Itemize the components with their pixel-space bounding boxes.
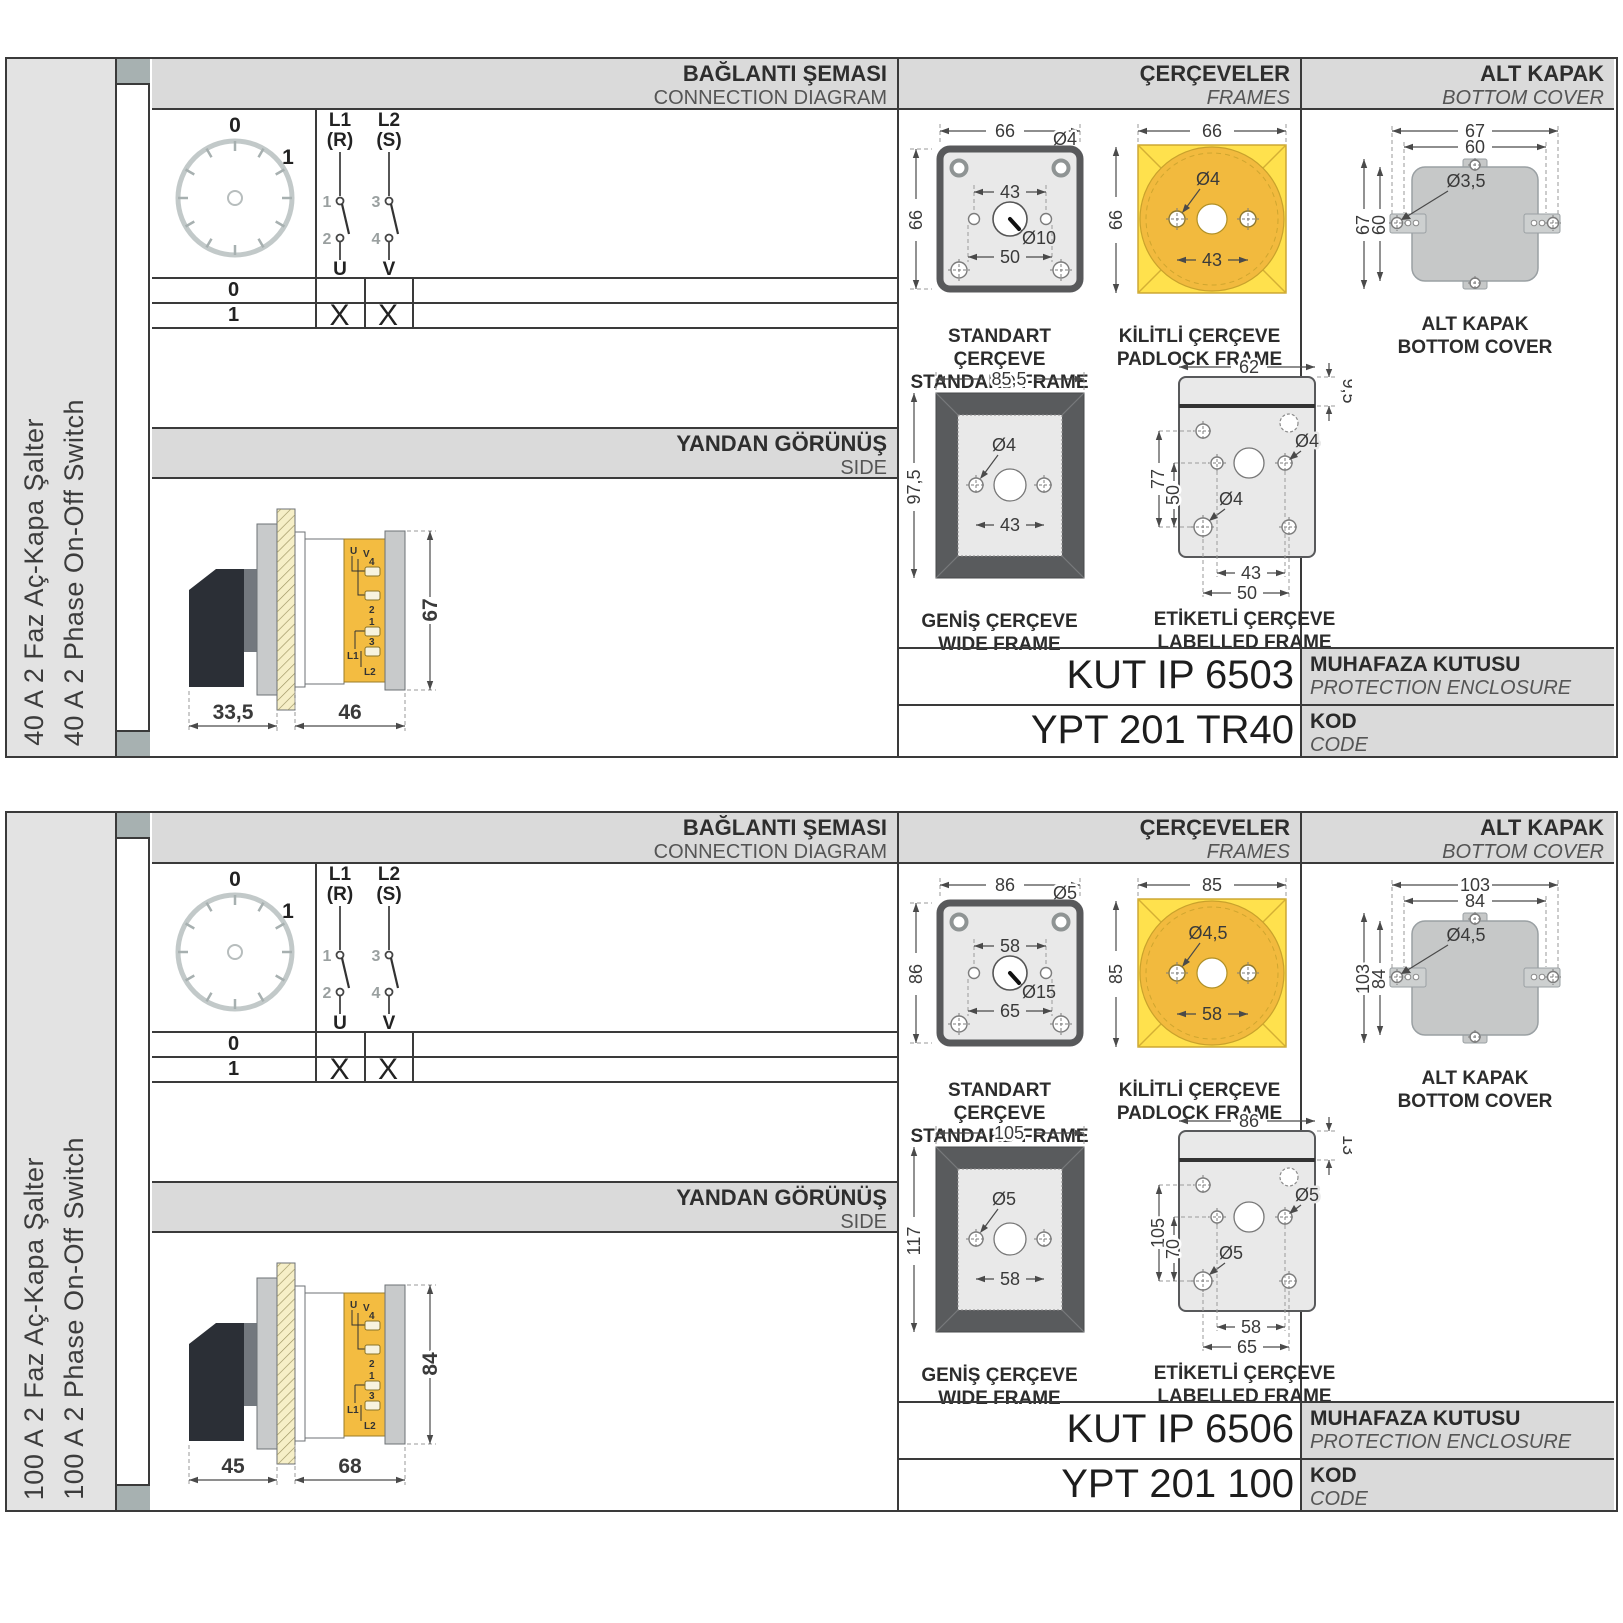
dim-height: 67 <box>419 598 442 621</box>
handle-knob <box>189 569 244 687</box>
cover-caption-en: BOTTOM COVER <box>1340 1090 1610 1113</box>
pole2-contact-upper: 3 <box>372 948 381 965</box>
lab-plain-hole <box>1280 1168 1298 1186</box>
code-label-en: CODE <box>1310 734 1614 757</box>
std-caption-tr: STANDART ÇERÇEVE <box>902 325 1097 371</box>
labelled-frame-drawing: 86 13 Ø5 Ø5 <box>1137 1111 1352 1359</box>
product-title-sidebar: 40 A 2 Faz Aç-Kapa Şalter 40 A 2 Phase O… <box>7 59 117 756</box>
product-title-turkish: 40 A 2 Faz Aç-Kapa Şalter <box>19 418 50 746</box>
wide-dim-hole: Ø5 <box>992 1189 1016 1209</box>
side-view-drawing: U V 4 2 1 3 L1 L2 67 <box>162 479 482 756</box>
std-dim-lower: 65 <box>1000 1001 1020 1021</box>
terminal-u: U <box>350 546 357 557</box>
padlock-frame-drawing: 66 66 Ø4 <box>1102 117 1297 322</box>
pole1-line2: (R) <box>327 130 353 151</box>
enclosure-label-en: PROTECTION ENCLOSURE <box>1310 677 1614 700</box>
wide-dim-h: 117 <box>904 1227 924 1256</box>
std-dim-shaft: Ø15 <box>1022 982 1056 1002</box>
padlock-dims-left: 85 <box>1106 901 1126 1047</box>
catalog-page: 40 A 2 Faz Aç-Kapa Şalter 40 A 2 Phase O… <box>0 0 1623 1623</box>
terminal-3: 3 <box>369 637 375 648</box>
lab-dim-w: 62 <box>1239 357 1259 377</box>
index-strip <box>117 59 150 756</box>
diagram-divider <box>315 110 317 327</box>
side-band-en: SIDE <box>152 457 887 479</box>
dial-position-0: 0 <box>229 114 241 137</box>
code-label-tr: KOD <box>1310 709 1614 734</box>
header-side-view: YANDAN GÖRÜNÜŞ SIDE <box>152 427 897 479</box>
panel-40a-switch: 40 A 2 Faz Aç-Kapa Şalter 40 A 2 Phase O… <box>5 57 1618 758</box>
terminal-u: U <box>350 1300 357 1311</box>
bottom-cover-caption: ALT KAPAK BOTTOM COVER <box>1340 313 1610 359</box>
cover-dim-w2: 84 <box>1465 891 1485 911</box>
standard-frame-dims-left: 86 <box>906 903 932 1043</box>
wide-dim-w: 85,5 <box>991 369 1026 389</box>
end-plate <box>385 531 405 690</box>
side-band-en: SIDE <box>152 1211 887 1233</box>
side-view-drawing: U V 4 2 1 3 L1 L2 84 <box>162 1233 482 1510</box>
terminal-4: 4 <box>369 1311 375 1322</box>
lab-dim-h2: 50 <box>1163 485 1183 505</box>
header-frames-tr: ÇERÇEVELER <box>897 59 1290 87</box>
padlock-dims-top: 66 <box>1138 121 1286 143</box>
pad-dim-hole: Ø4,5 <box>1188 923 1227 943</box>
enclosure-code-label: MUHAFAZA KUTUSU PROTECTION ENCLOSURE <box>1300 1403 1614 1458</box>
lab-dim-hole: Ø4 <box>1295 431 1319 451</box>
header-bottom-cover: ALT KAPAK BOTTOM COVER <box>1300 813 1614 864</box>
wide-dims-left: 117 <box>904 1147 924 1332</box>
std-caption-tr: STANDART ÇERÇEVE <box>902 1079 1097 1125</box>
code-label-en: CODE <box>1310 1488 1614 1511</box>
cover-dim-h2: 60 <box>1369 215 1389 235</box>
lab-dim-lower: 50 <box>1237 583 1257 603</box>
panel-100a-switch: 100 A 2 Faz Aç-Kapa Şalter 100 A 2 Phase… <box>5 811 1618 1512</box>
enclosure-code-label: MUHAFAZA KUTUSU PROTECTION ENCLOSURE <box>1300 649 1614 704</box>
std-side-hole-r <box>1041 214 1052 225</box>
table-row1-v: X <box>364 303 412 328</box>
wide-dim-inner: 58 <box>1000 1269 1020 1289</box>
product-title-english: 100 A 2 Phase On-Off Switch <box>59 1137 90 1500</box>
std-side-hole-r <box>1041 968 1052 979</box>
pad-dim-w: 85 <box>1202 875 1222 895</box>
pad-dim-h: 85 <box>1106 964 1126 984</box>
pole1-line2: (R) <box>327 884 353 905</box>
pad-dim-inner: 58 <box>1202 1004 1222 1024</box>
product-code-value: YPT 201 100 <box>897 1458 1300 1510</box>
pole2-line1: L2 <box>378 110 400 131</box>
header-frames-tr: ÇERÇEVELER <box>897 813 1290 841</box>
terminal-2: 2 <box>369 605 375 616</box>
code-label-tr: KOD <box>1310 1463 1614 1488</box>
panel-main: BAĞLANTI ŞEMASI CONNECTION DIAGRAM ÇERÇE… <box>152 813 1616 1510</box>
side-band-tr: YANDAN GÖRÜNÜŞ <box>152 1183 887 1211</box>
enclosure-code-value: KUT IP 6506 <box>897 1401 1300 1458</box>
std-corner-hole-tl <box>952 161 967 176</box>
pole2-out: V <box>383 259 396 277</box>
wide-dim-inner: 43 <box>1000 515 1020 535</box>
cover-caption-en: BOTTOM COVER <box>1340 336 1610 359</box>
cover-dims-left: 103 84 <box>1353 913 1389 1043</box>
header-frames-en: FRAMES <box>897 87 1290 109</box>
pole1-out: U <box>333 1013 347 1031</box>
handle-knob <box>189 1323 244 1441</box>
std-side-hole-l <box>969 214 980 225</box>
dim-a: 33,5 <box>213 701 254 724</box>
std-dim-inner: 43 <box>1000 182 1020 202</box>
header-side-view: YANDAN GÖRÜNÜŞ SIDE <box>152 1181 897 1233</box>
pole1-line1: L1 <box>329 110 352 131</box>
padlock-shaft-hole <box>1197 204 1227 234</box>
lab-dim-hole2: Ø5 <box>1219 1243 1243 1263</box>
lab-caption-tr: ETİKETLİ ÇERÇEVE <box>1137 1362 1352 1385</box>
switch-position-dial: 0 1 <box>152 864 315 1031</box>
wide-frame-drawing: 85,5 97,5 Ø4 43 <box>902 367 1097 607</box>
handle-hub <box>244 569 257 652</box>
padlock-frame-drawing: 85 85 Ø4,5 <box>1102 871 1297 1076</box>
cover-dim-hole: Ø4,5 <box>1446 925 1485 945</box>
dim-b: 68 <box>338 1455 362 1478</box>
header-connection-diagram: BAĞLANTI ŞEMASI CONNECTION DIAGRAM <box>152 59 897 110</box>
standard-frame-drawing: 86 Ø5 86 <box>902 871 1097 1076</box>
product-title-english: 40 A 2 Phase On-Off Switch <box>59 399 90 746</box>
index-tab-bottom <box>117 1484 150 1510</box>
pad-dim-h: 66 <box>1106 210 1126 230</box>
bottom-cover-caption: ALT KAPAK BOTTOM COVER <box>1340 1067 1610 1113</box>
cover-caption-tr: ALT KAPAK <box>1340 1067 1610 1090</box>
end-plate <box>385 1285 405 1444</box>
lab-caption-tr: ETİKETLİ ÇERÇEVE <box>1137 608 1352 631</box>
pole2-contact-upper: 3 <box>372 194 381 211</box>
table-divider-v-end <box>412 277 414 327</box>
standard-frame-drawing: 66 Ø4 66 <box>902 117 1097 322</box>
lab-dim-hole: Ø5 <box>1295 1185 1319 1205</box>
switch-position-dial: 0 1 <box>152 110 315 277</box>
std-dim-w: 86 <box>995 875 1015 895</box>
lab-dims-top: 86 <box>1179 1111 1315 1131</box>
product-code-value: YPT 201 TR40 <box>897 704 1300 756</box>
terminal-1: 1 <box>369 1371 375 1382</box>
padlock-shaft-hole <box>1197 958 1227 988</box>
wide-dims-top: 85,5 <box>936 369 1084 391</box>
terminal-1: 1 <box>369 617 375 628</box>
index-strip <box>117 813 150 1510</box>
table-line-bottom <box>152 1081 897 1083</box>
pole-2: L2 (S) 3 4 V <box>372 110 402 277</box>
lab-dims-top: 62 <box>1179 357 1315 377</box>
spacer <box>295 1286 305 1441</box>
header-connection-en: CONNECTION DIAGRAM <box>152 87 887 109</box>
index-tab-top <box>117 813 150 839</box>
cover-dim-h2: 84 <box>1369 969 1389 989</box>
bottom-cover-drawing: 67 60 67 60 <box>1340 121 1610 311</box>
terminal-3: 3 <box>369 1391 375 1402</box>
lab-dims-strip: 9,5 <box>1317 363 1352 421</box>
cover-dim-w2: 60 <box>1465 137 1485 157</box>
pole-2: L2 (S) 3 4 V <box>372 864 402 1031</box>
side-band-tr: YANDAN GÖRÜNÜŞ <box>152 429 887 457</box>
header-frames-en: FRAMES <box>897 841 1290 863</box>
table-row0-label: 0 <box>152 1033 315 1056</box>
std-dim-shaft: Ø10 <box>1022 228 1056 248</box>
wide-shaft-hole <box>994 1223 1026 1255</box>
lab-dims-strip: 13 <box>1317 1117 1352 1175</box>
header-connection-diagram: BAĞLANTI ŞEMASI CONNECTION DIAGRAM <box>152 813 897 864</box>
wide-dims-left: 97,5 <box>904 393 924 578</box>
handle-hub <box>244 1323 257 1406</box>
table-row1-v: X <box>364 1057 412 1082</box>
switch-body-front <box>305 539 344 684</box>
lab-dim-hole2: Ø4 <box>1219 489 1243 509</box>
pole1-contact-upper: 1 <box>323 194 332 211</box>
pole1-contact-lower: 2 <box>323 985 332 1002</box>
table-line-bottom <box>152 327 897 329</box>
header-cover-en: BOTTOM COVER <box>1300 841 1604 863</box>
wide-shaft-hole <box>994 469 1026 501</box>
std-dim-w: 66 <box>995 121 1015 141</box>
dial-position-1: 1 <box>282 146 294 169</box>
std-dim-h: 66 <box>906 210 926 230</box>
wide-dim-hole: Ø4 <box>992 435 1016 455</box>
product-title-turkish: 100 A 2 Faz Aç-Kapa Şalter <box>19 1157 50 1500</box>
pole1-contact-lower: 2 <box>323 231 332 248</box>
pole-1: L1 (R) 1 2 U <box>323 110 354 277</box>
panel-main: BAĞLANTI ŞEMASI CONNECTION DIAGRAM ÇERÇE… <box>152 59 1616 756</box>
lab-shaft-hole <box>1234 448 1264 478</box>
pole-1: L1 (R) 1 2 U <box>323 864 354 1031</box>
lab-dim-strip: 13 <box>1339 1135 1352 1155</box>
std-corner-hole-tr <box>1054 915 1069 930</box>
table-row1-u: X <box>315 1057 364 1082</box>
pole1-contact-upper: 1 <box>323 948 332 965</box>
table-divider-v-end <box>412 1031 414 1081</box>
terminal-l1: L1 <box>347 651 359 662</box>
table-row1-label: 1 <box>152 1058 315 1081</box>
mounting-plate <box>257 1278 277 1449</box>
terminal-l2: L2 <box>364 1421 376 1432</box>
dim-b: 46 <box>338 701 361 724</box>
enclosure-label-en: PROTECTION ENCLOSURE <box>1310 1431 1614 1454</box>
wide-dim-h: 97,5 <box>904 469 924 504</box>
standard-frame-dims-left: 66 <box>906 149 932 289</box>
lab-plain-hole <box>1280 414 1298 432</box>
std-corner-hole-tl <box>952 915 967 930</box>
dial-position-0: 0 <box>229 868 241 891</box>
header-cover-en: BOTTOM COVER <box>1300 87 1604 109</box>
mounting-plate <box>257 524 277 695</box>
header-cover-tr: ALT KAPAK <box>1300 813 1604 841</box>
contact-diagram: L1 (R) 1 2 U L2 (S) 3 4 <box>315 864 455 1031</box>
cover-dim-hole: Ø3,5 <box>1446 171 1485 191</box>
product-code-label: KOD CODE <box>1300 1460 1614 1510</box>
std-dim-h: 86 <box>906 964 926 984</box>
cover-caption-tr: ALT KAPAK <box>1340 313 1610 336</box>
std-dim-inner: 58 <box>1000 936 1020 956</box>
bottom-cover-drawing: 103 84 103 84 <box>1340 875 1610 1065</box>
table-row1-u: X <box>315 303 364 328</box>
lab-shaft-hole <box>1234 1202 1264 1232</box>
enclosure-label-tr: MUHAFAZA KUTUSU <box>1310 1406 1614 1431</box>
enclosure-label-tr: MUHAFAZA KUTUSU <box>1310 652 1614 677</box>
pole1-line1: L1 <box>329 864 352 885</box>
labelled-frame-drawing: 62 9,5 Ø4 Ø4 <box>1137 357 1352 605</box>
wide-caption-tr: GENİŞ ÇERÇEVE <box>902 1364 1097 1387</box>
pole1-out: U <box>333 259 347 277</box>
lab-dim-lower: 65 <box>1237 1337 1257 1357</box>
panel-hatch <box>277 1263 295 1464</box>
pole2-line2: (S) <box>376 884 401 905</box>
pole2-contact-lower: 4 <box>372 985 381 1002</box>
pole2-contact-lower: 4 <box>372 231 381 248</box>
pole2-line1: L2 <box>378 864 400 885</box>
lab-dim-w: 86 <box>1239 1111 1259 1131</box>
pad-caption-tr: KİLİTLİ ÇERÇEVE <box>1102 325 1297 348</box>
index-tab-bottom <box>117 730 150 756</box>
pole2-out: V <box>383 1013 396 1031</box>
header-frames: ÇERÇEVELER FRAMES <box>897 813 1300 864</box>
padlock-dims-top: 85 <box>1138 875 1286 897</box>
wide-caption-tr: GENİŞ ÇERÇEVE <box>902 610 1097 633</box>
lab-dim-strip: 9,5 <box>1339 378 1352 403</box>
header-connection-tr: BAĞLANTI ŞEMASI <box>152 59 887 87</box>
lab-dim-h2: 70 <box>1163 1239 1183 1259</box>
diagram-divider <box>315 864 317 1081</box>
dim-a: 45 <box>221 1455 245 1478</box>
pad-caption-tr: KİLİTLİ ÇERÇEVE <box>1102 1079 1297 1102</box>
lab-dim-inner: 43 <box>1241 563 1261 583</box>
pad-dim-hole: Ø4 <box>1196 169 1220 189</box>
terminal-4: 4 <box>369 557 375 568</box>
enclosure-code-value: KUT IP 6503 <box>897 647 1300 704</box>
contact-diagram: L1 (R) 1 2 U L2 (S) 3 4 <box>315 110 455 277</box>
pole2-line2: (S) <box>376 130 401 151</box>
terminal-l1: L1 <box>347 1405 359 1416</box>
padlock-dims-left: 66 <box>1106 147 1126 293</box>
header-cover-tr: ALT KAPAK <box>1300 59 1604 87</box>
dim-height: 84 <box>419 1352 442 1376</box>
wide-dim-w: 105 <box>994 1123 1024 1143</box>
index-tab-top <box>117 59 150 85</box>
header-bottom-cover: ALT KAPAK BOTTOM COVER <box>1300 59 1614 110</box>
header-connection-tr: BAĞLANTI ŞEMASI <box>152 813 887 841</box>
lab-dim-inner: 58 <box>1241 1317 1261 1337</box>
std-corner-hole-tr <box>1054 161 1069 176</box>
product-code-label: KOD CODE <box>1300 706 1614 756</box>
header-connection-en: CONNECTION DIAGRAM <box>152 841 887 863</box>
dial-position-1: 1 <box>282 900 294 923</box>
pad-dim-inner: 43 <box>1202 250 1222 270</box>
std-dim-lower: 50 <box>1000 247 1020 267</box>
wide-frame-drawing: 105 117 Ø5 58 <box>902 1121 1097 1361</box>
std-side-hole-l <box>969 968 980 979</box>
terminal-l2: L2 <box>364 667 376 678</box>
spacer <box>295 532 305 687</box>
table-row0-label: 0 <box>152 279 315 302</box>
product-title-sidebar: 100 A 2 Faz Aç-Kapa Şalter 100 A 2 Phase… <box>7 813 117 1510</box>
cover-dims-left: 67 60 <box>1353 159 1389 289</box>
switch-body-front <box>305 1293 344 1438</box>
panel-hatch <box>277 509 295 710</box>
terminal-2: 2 <box>369 1359 375 1370</box>
wide-dims-top: 105 <box>936 1123 1084 1145</box>
pad-dim-w: 66 <box>1202 121 1222 141</box>
table-row1-label: 1 <box>152 304 315 327</box>
header-frames: ÇERÇEVELER FRAMES <box>897 59 1300 110</box>
